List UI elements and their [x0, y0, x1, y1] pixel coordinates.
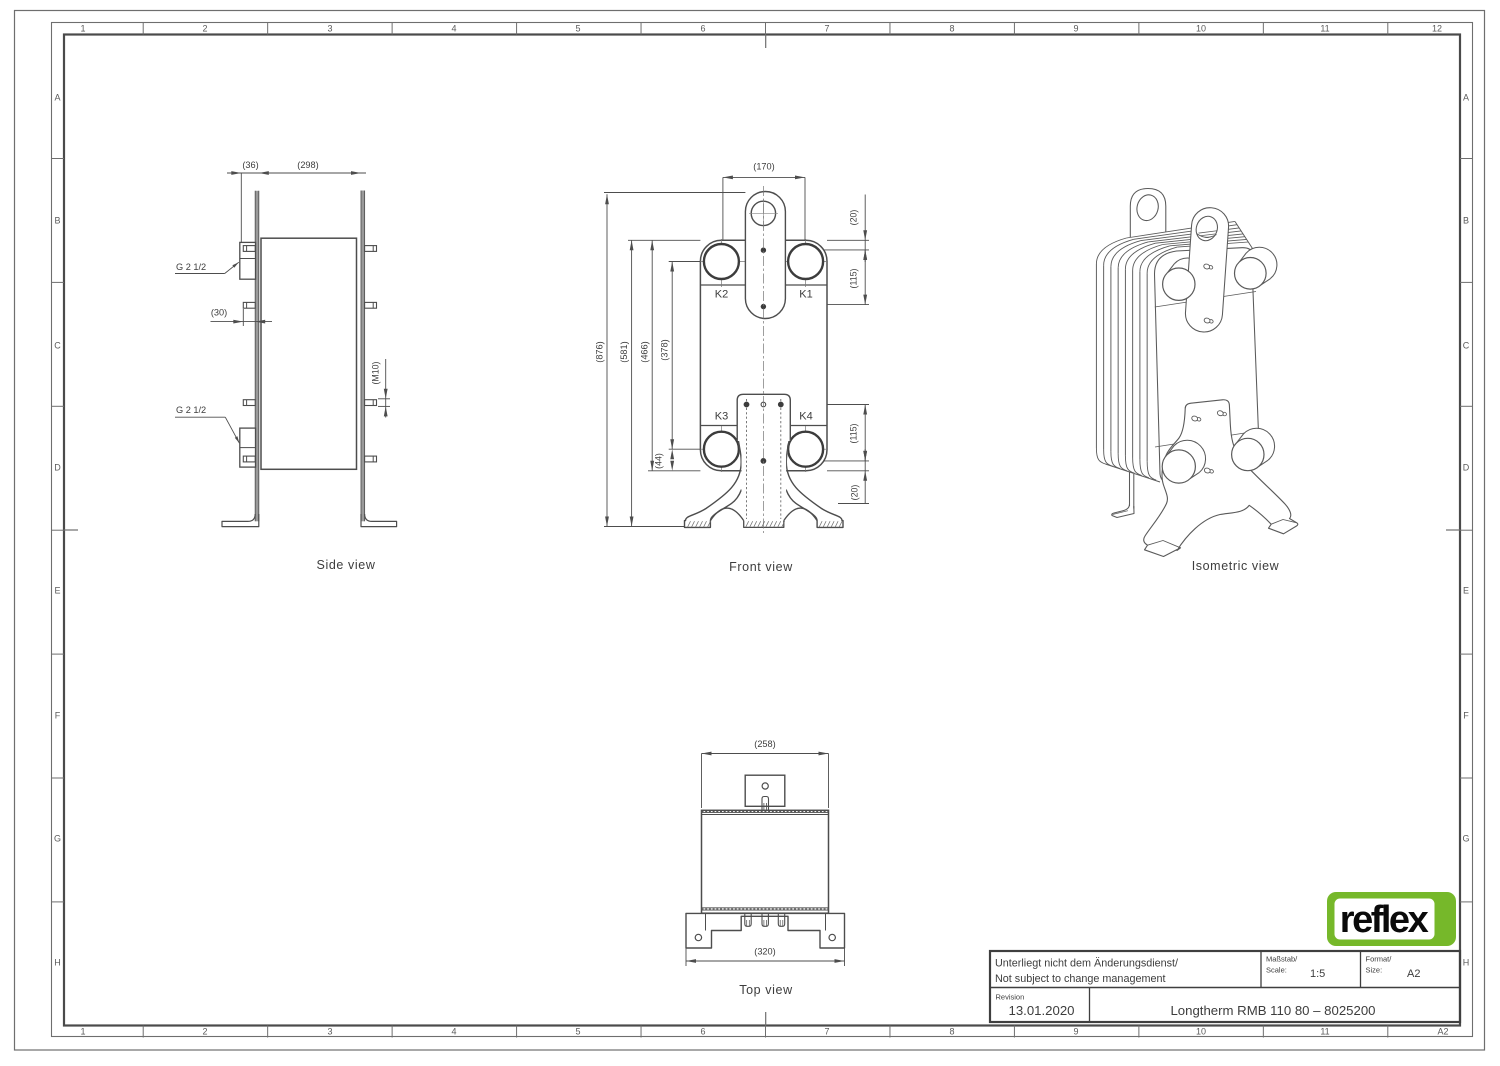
- svg-text:K1: K1: [799, 289, 812, 301]
- svg-text:6: 6: [700, 24, 705, 34]
- svg-text:3: 3: [327, 24, 332, 34]
- svg-text:2: 2: [202, 24, 207, 34]
- svg-text:E: E: [54, 586, 60, 596]
- svg-text:10: 10: [1196, 1027, 1206, 1037]
- svg-text:(581): (581): [619, 341, 629, 362]
- svg-text:Maßstab/: Maßstab/: [1266, 955, 1298, 964]
- svg-text:F: F: [55, 711, 61, 721]
- svg-text:K2: K2: [715, 289, 728, 301]
- svg-text:9: 9: [1073, 1027, 1078, 1037]
- svg-text:(298): (298): [297, 160, 318, 170]
- svg-text:Not subject to change mana: Not subject to change management: [995, 973, 1165, 985]
- svg-text:E: E: [1463, 586, 1469, 596]
- svg-text:(876): (876): [595, 341, 605, 362]
- svg-text:Isometric view: Isometric view: [1192, 559, 1280, 573]
- svg-text:A2: A2: [1437, 1027, 1448, 1037]
- svg-text:5: 5: [575, 24, 580, 34]
- svg-text:(20): (20): [850, 485, 860, 501]
- svg-text:10: 10: [1196, 24, 1206, 34]
- svg-text:reflex: reflex: [1340, 899, 1429, 941]
- svg-text:G 2 1/2: G 2 1/2: [176, 405, 206, 415]
- svg-text:A2: A2: [1407, 968, 1420, 980]
- svg-text:A: A: [54, 93, 60, 103]
- svg-text:1: 1: [80, 1027, 85, 1037]
- svg-text:H: H: [1463, 958, 1470, 968]
- svg-text:(20): (20): [849, 210, 859, 226]
- svg-text:(44): (44): [654, 453, 664, 469]
- svg-text:8: 8: [949, 1027, 954, 1037]
- svg-text:Unterliegt nicht dem Änderu: Unterliegt nicht dem Änderungsdienst/: [995, 958, 1178, 970]
- svg-text:A: A: [1463, 93, 1469, 103]
- svg-text:1:5: 1:5: [1310, 968, 1325, 980]
- svg-text:11: 11: [1320, 1027, 1329, 1037]
- svg-text:8: 8: [949, 24, 954, 34]
- svg-text:7: 7: [824, 24, 829, 34]
- svg-text:Longtherm RMB 110 80 – 80: Longtherm RMB 110 80 – 8025200: [1170, 1003, 1375, 1018]
- svg-text:K3: K3: [715, 411, 728, 423]
- svg-text:Revision: Revision: [996, 993, 1025, 1002]
- svg-text:G: G: [54, 834, 61, 844]
- svg-text:7: 7: [824, 1027, 829, 1037]
- svg-text:11: 11: [1320, 24, 1329, 34]
- svg-text:(36): (36): [242, 160, 258, 170]
- svg-text:(115): (115): [849, 268, 859, 288]
- svg-text:(30): (30): [211, 308, 227, 318]
- svg-text:(378): (378): [660, 339, 670, 360]
- svg-text:4: 4: [451, 24, 456, 34]
- svg-text:F: F: [1463, 711, 1469, 721]
- svg-text:12: 12: [1432, 24, 1442, 34]
- svg-text:(M10): (M10): [371, 361, 381, 384]
- svg-text:B: B: [54, 216, 60, 226]
- svg-text:(320): (320): [754, 947, 775, 957]
- svg-text:G: G: [1462, 834, 1469, 844]
- svg-text:Size:: Size:: [1366, 966, 1383, 975]
- svg-text:3: 3: [327, 1027, 332, 1037]
- svg-text:2: 2: [202, 1027, 207, 1037]
- svg-text:Format/: Format/: [1366, 955, 1393, 964]
- svg-text:C: C: [1463, 341, 1470, 351]
- svg-text:Top view: Top view: [739, 983, 793, 997]
- svg-text:Side view: Side view: [317, 558, 376, 572]
- svg-text:(258): (258): [754, 739, 775, 749]
- svg-text:1: 1: [80, 24, 85, 34]
- svg-text:(115): (115): [849, 423, 859, 443]
- svg-text:B: B: [1463, 216, 1469, 226]
- svg-text:Scale:: Scale:: [1266, 966, 1287, 975]
- svg-text:C: C: [54, 341, 61, 351]
- svg-text:(466): (466): [640, 341, 650, 362]
- svg-text:4: 4: [451, 1027, 456, 1037]
- svg-text:(170): (170): [753, 162, 774, 172]
- svg-text:Front view: Front view: [729, 560, 793, 574]
- svg-text:K4: K4: [799, 411, 812, 423]
- svg-text:13.01.2020: 13.01.2020: [1009, 1003, 1075, 1018]
- svg-text:H: H: [54, 958, 61, 968]
- svg-text:G 2 1/2: G 2 1/2: [176, 262, 206, 272]
- svg-text:9: 9: [1073, 24, 1078, 34]
- svg-text:D: D: [54, 463, 61, 473]
- svg-text:D: D: [1463, 463, 1470, 473]
- svg-text:5: 5: [575, 1027, 580, 1037]
- svg-text:6: 6: [700, 1027, 705, 1037]
